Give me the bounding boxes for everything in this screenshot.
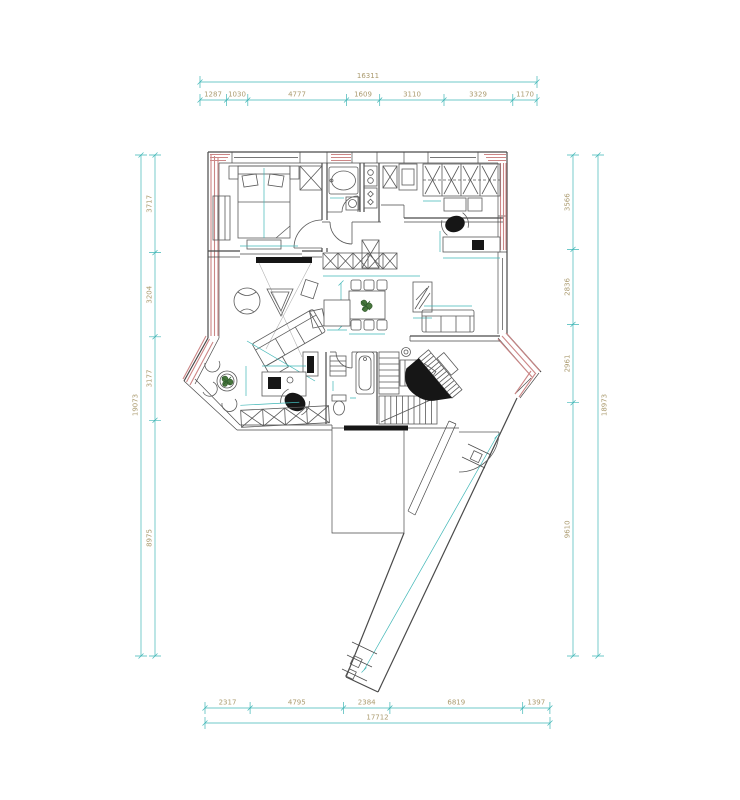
dining-chair — [351, 280, 361, 290]
corridor-fittings — [342, 434, 500, 682]
dim-label: 3204 — [146, 285, 154, 303]
dim-label: 6819 — [447, 699, 465, 707]
bed-bench — [247, 240, 281, 249]
dim-label: 3717 — [146, 195, 154, 213]
tv-panel — [256, 257, 312, 263]
cabinet-symbol — [399, 164, 417, 190]
dim-label: 2836 — [564, 277, 572, 295]
dining-chair — [364, 320, 374, 330]
threshold — [344, 426, 408, 431]
vanity-panel-symbol — [413, 282, 432, 318]
exterior-walls — [184, 152, 541, 692]
dimension-chain-right: 3566 2836 2961 9610 18973 — [564, 153, 609, 659]
corridor-upper-left-wall — [408, 421, 456, 515]
wardrobe-symbol — [300, 166, 322, 190]
dim-label: 1397 — [527, 699, 545, 707]
dim-label: 2317 — [219, 699, 237, 707]
hall-door-arc — [330, 222, 352, 244]
bedroom-door-arc — [294, 220, 322, 248]
dim-label: 3329 — [469, 91, 487, 99]
dimension-chain-left: 3717 3204 3177 8975 19073 — [132, 153, 162, 659]
dim-label: 1609 — [354, 91, 372, 99]
hall-sideboard-symbol — [323, 253, 420, 276]
dimension-chain-bottom: 2317 4795 2384 6819 1397 17712 — [203, 699, 553, 730]
floor-plan-canvas: 16311 1287 1030 4777 1609 3110 3329 1170… — [0, 0, 740, 800]
desk-symbol — [443, 237, 500, 252]
drawer-unit — [468, 198, 482, 211]
double-bed-symbol — [238, 166, 290, 238]
dining-chair — [351, 320, 361, 330]
corridor-end-wall — [346, 677, 378, 692]
dim-label: 3110 — [403, 91, 421, 99]
toilet-symbol — [332, 395, 346, 415]
bathtub-small-symbol — [356, 352, 374, 394]
dim-label: 9610 — [564, 520, 572, 538]
dim-label: 18973 — [601, 394, 609, 416]
armchair-symbol — [267, 289, 293, 316]
printer — [472, 240, 484, 250]
study-room — [440, 212, 500, 258]
floor-plan-page: 16311 1287 1030 4777 1609 3110 3329 1170… — [0, 0, 740, 800]
bottom-sideboard-symbol — [240, 401, 329, 428]
lower-block-outline — [332, 430, 404, 533]
dimension-chain-top: 16311 1287 1030 4777 1609 3110 3329 1170 — [198, 72, 540, 106]
closet-room — [383, 164, 500, 211]
plant-symbol — [222, 376, 233, 387]
armchair-symbol — [234, 288, 260, 314]
dresser-symbol — [213, 196, 230, 240]
dining-chair — [377, 280, 387, 290]
dim-label: 2961 — [564, 355, 572, 373]
dining-chair — [377, 320, 387, 330]
shoe-cabinet-symbol — [383, 166, 397, 188]
dim-label: 2384 — [358, 699, 376, 707]
sofa-3seat-symbol — [422, 306, 474, 332]
dim-label: 17712 — [366, 714, 388, 722]
dim-label: 19073 — [132, 394, 140, 416]
nightstand — [229, 166, 238, 179]
side-chair-symbol — [301, 280, 318, 299]
curved-chair-symbol — [205, 361, 220, 372]
office-chair-symbol — [440, 212, 471, 236]
coffee-table-symbol — [324, 300, 350, 326]
curved-chair-symbol — [222, 399, 237, 412]
dim-label: 1287 — [204, 91, 222, 99]
dim-label: 3566 — [564, 193, 572, 211]
fridge-symbol — [362, 240, 379, 268]
dim-label: 4777 — [288, 91, 306, 99]
corridor-door-arc — [459, 432, 499, 472]
dim-label: 1030 — [228, 91, 246, 99]
dim-label: 1170 — [516, 91, 534, 99]
desk-monitor — [268, 377, 281, 389]
wardrobe-run-symbol — [423, 164, 500, 196]
dim-label: 4795 — [288, 699, 306, 707]
sitting-corner — [203, 361, 246, 412]
chaise-sofa-symbol — [252, 309, 332, 377]
dim-label: 8975 — [146, 529, 154, 547]
bathtub-symbol — [329, 167, 358, 194]
dim-label: 16311 — [357, 72, 379, 80]
wash-basin-symbol — [346, 197, 359, 210]
bedroom-furniture — [213, 166, 322, 249]
dim-label: 3177 — [146, 370, 154, 388]
drawer-unit — [444, 198, 466, 211]
exterior-wall-hatch — [183, 154, 540, 397]
nightstand — [290, 166, 299, 179]
dining-chair — [364, 280, 374, 290]
stool-symbol — [402, 348, 411, 357]
